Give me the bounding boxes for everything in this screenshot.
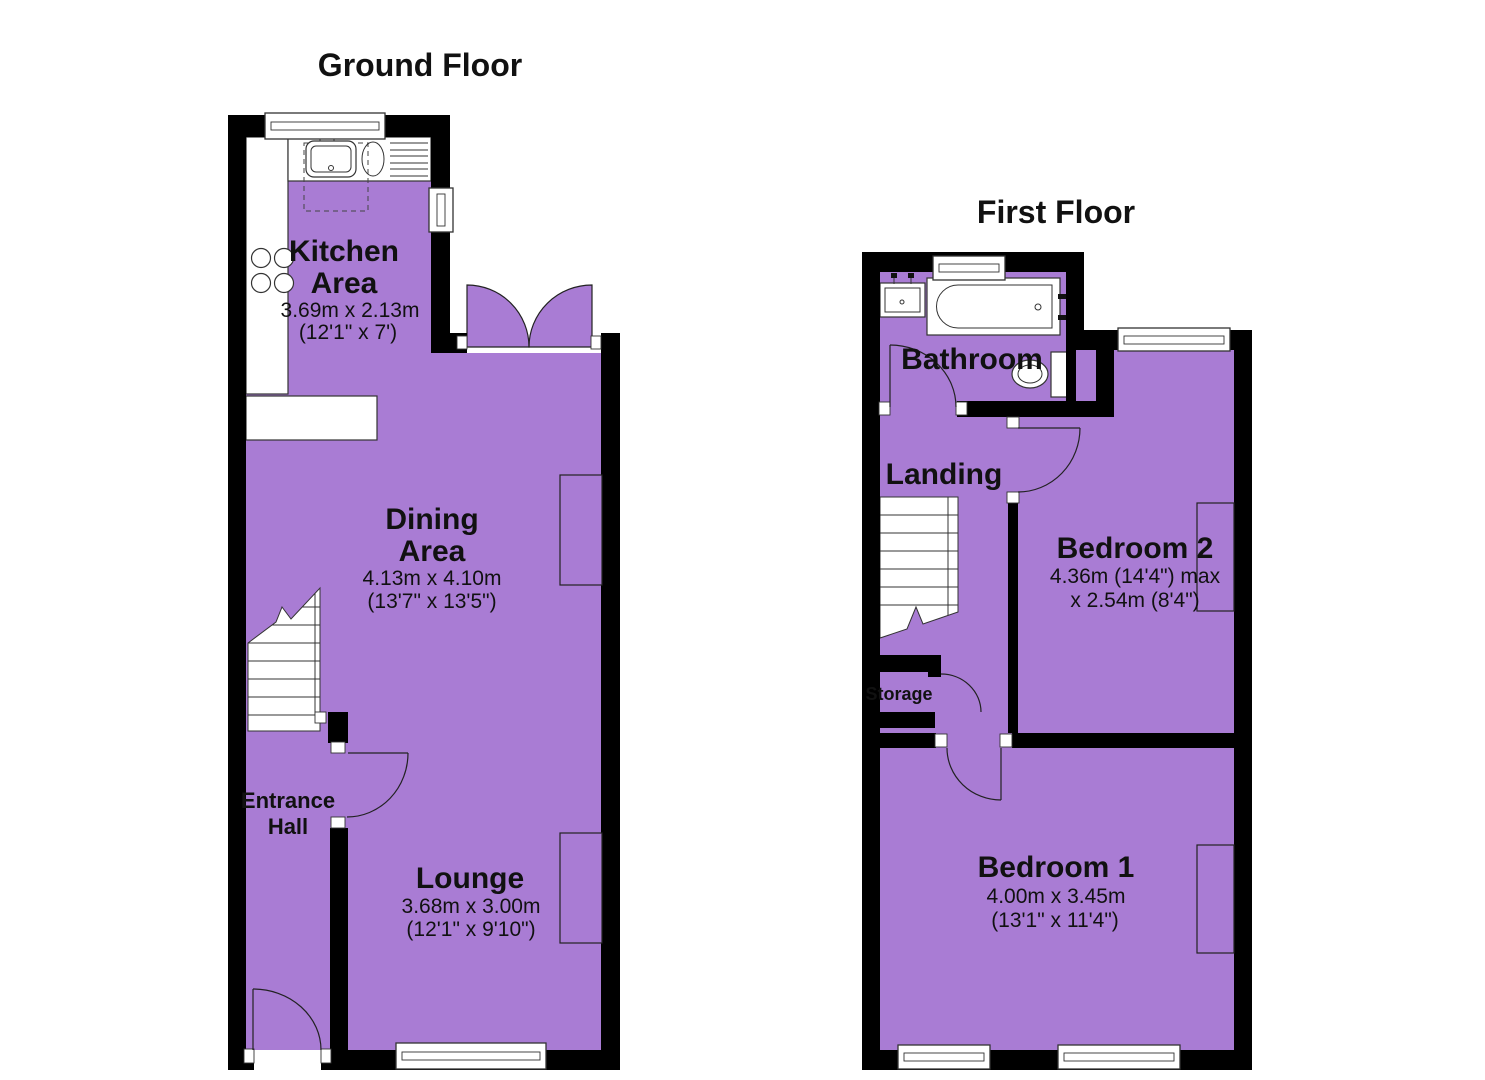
front-door-gap [254,1050,321,1070]
bedroom2-dim-line2: x 2.54m (8'4") [1070,589,1199,612]
storage-room: Storage [865,684,932,704]
front-door-jamb [321,1049,331,1063]
hall-label-line1: Entrance [241,788,335,813]
bedroom1-dim-metric: 4.00m x 3.45m [987,885,1126,908]
dining-dim-imperial: (13'7" x 13'5") [367,590,496,613]
landing-label: Landing [886,458,1003,491]
storage-label: Storage [865,684,932,704]
lounge-dim-metric: 3.68m x 3.00m [402,895,541,918]
bedroom1-label: Bedroom 1 [978,851,1135,884]
first-floor-plan: First Floor [862,194,1252,1070]
lounge-room: Lounge 3.68m x 3.00m (12'1" x 9'10") [402,862,541,941]
bedroom2-window-icon [1118,328,1230,351]
patio-door-jamb [457,336,467,349]
ground-floor-plan: Ground Floor [228,47,620,1070]
kitchen-dim-imperial: (12'1" x 7') [299,321,397,344]
bedroom1-chimney-breast [1197,845,1234,953]
bedroom2-label: Bedroom 2 [1057,532,1214,565]
bedroom2-door-jamb [1007,417,1019,428]
kitchen-top-window-icon [265,113,385,139]
first-floor-title: First Floor [977,194,1135,230]
hall-door-jamb [331,742,345,753]
bedroom1-room: Bedroom 1 4.00m x 3.45m (13'1" x 11'4") [978,851,1135,932]
bedroom1-window-left-icon [898,1045,990,1069]
kitchen-side-window-icon [429,188,453,232]
bathroom-label: Bathroom [901,343,1043,376]
bedroom1-window-right-icon [1058,1045,1180,1069]
bedroom2-room: Bedroom 2 4.36m (14'4") max x 2.54m (8'4… [1050,532,1221,612]
bath-tub-icon [927,278,1067,335]
front-door-jamb [244,1049,254,1063]
kitchen-dim-metric: 3.69m x 2.13m [281,299,420,322]
bedroom1-door-jamb [1000,734,1012,747]
lounge-chimney-breast [560,833,602,943]
kitchen-label-line1: Kitchen [289,235,399,268]
bathroom-door-jamb [879,402,890,415]
floorplan-page: Ground Floor [0,0,1485,1080]
bedroom2-door-jamb [1007,492,1019,503]
floorplan-canvas: Ground Floor [0,0,1485,1080]
bedroom1-door-jamb [935,734,947,747]
bedroom2-dim-line1: 4.36m (14'4") max [1050,565,1221,588]
dining-label-line2: Area [399,535,466,568]
lounge-dim-imperial: (12'1" x 9'10") [406,918,535,941]
worktop-unit [246,396,377,440]
stair-wall-jamb [315,712,326,723]
hall-door-jamb [331,817,345,828]
dining-dim-metric: 4.13m x 4.10m [363,567,502,590]
patio-double-door-icon [467,285,592,347]
lounge-window-icon [396,1043,546,1069]
lounge-label: Lounge [416,862,524,895]
bathroom-window-icon [933,256,1005,280]
dining-chimney-breast [560,475,602,585]
bedroom1-dim-imperial: (13'1" x 11'4") [991,909,1119,932]
kitchen-label-line2: Area [311,267,378,300]
hall-label-line2: Hall [268,814,308,839]
ground-floor-title: Ground Floor [318,47,522,83]
landing-room: Landing [886,458,1003,491]
bathroom-door-jamb [956,402,967,415]
patio-door-jamb [591,336,601,349]
bathroom-room: Bathroom [901,343,1043,376]
dining-label-line1: Dining [385,503,478,536]
